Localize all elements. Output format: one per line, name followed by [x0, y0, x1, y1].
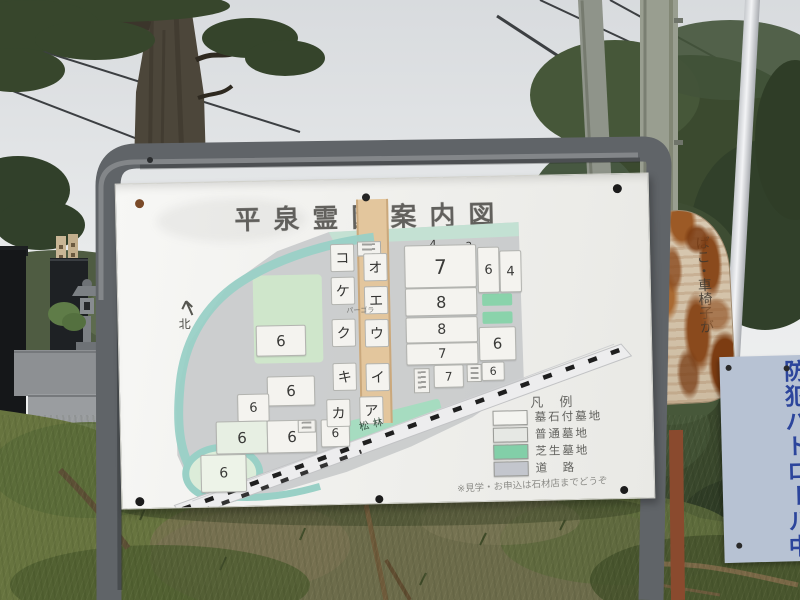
north-arrow [182, 301, 192, 315]
pergola-label: パーゴラ [346, 305, 374, 316]
legend-swatch [493, 444, 528, 460]
lawn-plot [482, 311, 512, 324]
map-block: 6 [477, 247, 500, 293]
map-block: 6 [216, 420, 269, 454]
sign-bolt [726, 365, 732, 371]
rusty-post [676, 430, 678, 600]
legend-row: 普通墓地 [493, 426, 589, 442]
legend-label: 芝生墓地 [535, 442, 589, 459]
row-label: オ [363, 253, 388, 281]
row-label: コ [330, 244, 355, 272]
row-label: ウ [365, 319, 390, 347]
legend-swatch [492, 410, 527, 426]
legend-row: 芝生墓地 [493, 443, 589, 459]
cemetery-map-board: 平泉霊園案内図 [115, 172, 656, 509]
map-block: 6 [237, 393, 270, 422]
map-block: 4 [499, 250, 522, 292]
lawn-plot [482, 293, 512, 306]
small-structure-box [298, 419, 316, 432]
row-label: イ [365, 363, 390, 391]
map-block: 6 [200, 454, 247, 493]
sign-bolt [736, 543, 742, 549]
small-structure-box [467, 364, 482, 382]
patrol-sign-text: 防犯パトロール中 [775, 359, 800, 560]
legend-swatch [494, 461, 529, 477]
map-block: 6 [479, 326, 517, 361]
map-block: 7 [406, 342, 478, 366]
frame-bolt [147, 157, 153, 163]
legend-row: 道 路 [494, 460, 577, 476]
map-block: 7 [404, 244, 477, 288]
map-block: 7 [434, 364, 464, 388]
small-structure-box [414, 368, 431, 393]
legend-row: 墓石付墓地 [492, 408, 602, 424]
map-block: 6 [267, 375, 316, 406]
map-block: 6 [481, 362, 504, 381]
legend-swatch [493, 427, 528, 443]
map-block: 8 [406, 316, 479, 344]
photo-outdoor-cemetery-sign: ばこ・車椅子が 里中案内所 平泉霊園案内図 [0, 0, 800, 600]
map-block: 8 [405, 287, 478, 317]
legend-label: 普通墓地 [535, 425, 589, 442]
legend-label: 墓石付墓地 [534, 407, 602, 424]
map-block: 6 [256, 325, 307, 357]
board-bolt [375, 495, 383, 503]
row-label: キ [332, 363, 357, 391]
row-label: ク [332, 319, 357, 347]
patrol-sign: 防犯パトロール中 [719, 355, 800, 563]
legend-label: 道 路 [536, 459, 577, 476]
row-label: カ [326, 399, 351, 427]
north-label: 北 [178, 315, 190, 332]
row-label: ケ [331, 277, 356, 305]
